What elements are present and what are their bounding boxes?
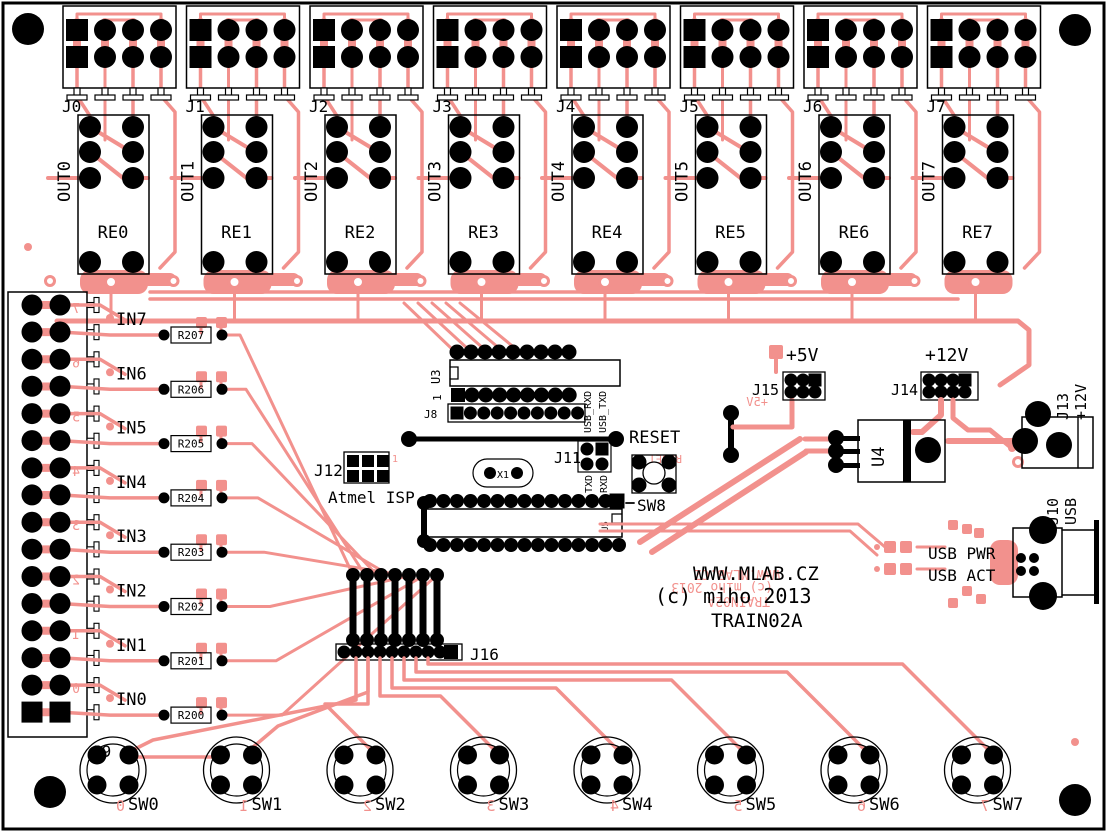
pad-round: [493, 116, 515, 138]
mirror-digit: 5: [72, 411, 80, 426]
usb-act-label: USB ACT: [928, 566, 996, 585]
sw8-ref: SW8: [637, 496, 666, 515]
terminal-mark: [960, 95, 980, 100]
pad-round: [477, 538, 491, 552]
jumper-end: [346, 568, 360, 582]
pad-round: [504, 494, 518, 508]
pad-square: [437, 46, 459, 68]
connector-ref: J0: [62, 97, 81, 116]
pad-round: [518, 494, 532, 508]
pad-round: [335, 746, 354, 765]
j11-signal: USB_RXD: [583, 391, 594, 433]
pad-round: [490, 776, 509, 795]
pad-round: [614, 746, 633, 765]
pad-round: [203, 167, 225, 189]
jumper-end: [346, 633, 360, 647]
pad-round: [891, 46, 913, 68]
mounting-hole: [1059, 784, 1091, 816]
output-signal-label: OUT1: [179, 161, 199, 202]
pad-round: [558, 494, 572, 508]
pad-round: [491, 494, 505, 508]
input-signal-label: IN5: [116, 419, 147, 439]
pad-round: [458, 746, 477, 765]
pad-round: [122, 19, 144, 41]
pad-round: [159, 547, 170, 558]
pad-round: [369, 19, 391, 41]
pad-round: [544, 407, 557, 420]
pad-round: [369, 116, 391, 138]
pad-round: [450, 538, 464, 552]
pad-round: [614, 776, 633, 795]
terminal-mark: [522, 95, 542, 100]
smd-pad: [962, 586, 972, 596]
switch-ref: SW4: [622, 795, 653, 815]
pad-round: [326, 167, 348, 189]
mirror-digit: 1: [72, 628, 80, 643]
pad-round: [616, 46, 638, 68]
pad-round: [737, 746, 756, 765]
terminal-mark: [95, 95, 115, 100]
jumper-end: [374, 568, 388, 582]
pad-round: [159, 330, 170, 341]
pad-round: [50, 349, 71, 370]
pad-round: [159, 438, 170, 449]
pad-square: [444, 645, 458, 659]
pad-round: [785, 386, 798, 399]
output-signal-label: OUT4: [549, 161, 569, 202]
in-via: [106, 477, 114, 485]
pad-round: [987, 116, 1009, 138]
switch-outline: [80, 737, 146, 803]
pad-round: [493, 141, 515, 163]
pad-round: [493, 46, 515, 68]
terminal-mark: [769, 95, 789, 100]
pad-round: [22, 457, 43, 478]
pad-round: [493, 167, 515, 189]
rail-5v-label: +5V: [786, 345, 819, 366]
pad-square: [684, 46, 706, 68]
switch-ref: SW0: [128, 795, 159, 815]
pad-round: [863, 251, 885, 273]
j11-ref: J11: [554, 449, 581, 467]
pad-round: [952, 746, 971, 765]
x1-ref: X1: [497, 470, 509, 481]
pad-round: [705, 776, 724, 795]
pad-round: [952, 776, 971, 795]
pad-round: [987, 46, 1009, 68]
copper-trace: [60, 441, 158, 444]
connector-ref: J6: [803, 97, 822, 116]
terminal-mark: [94, 705, 99, 720]
mirror-digit: 1: [239, 797, 248, 815]
pad-round: [22, 620, 43, 641]
switch-ref: SW7: [993, 795, 1024, 815]
terminal-mark: [219, 95, 239, 100]
pad-round: [79, 167, 101, 189]
via: [476, 277, 487, 288]
jumper-end: [388, 568, 402, 582]
pad-round: [616, 116, 638, 138]
pad-round: [1012, 428, 1038, 454]
pad-round: [246, 46, 268, 68]
pin1-mark: 1: [392, 454, 398, 465]
in-via: [106, 694, 114, 702]
reset-label: RESET: [629, 428, 680, 448]
pad-round: [423, 538, 437, 552]
pad-round: [506, 388, 521, 403]
via: [229, 277, 240, 288]
mirror-digit: 7: [72, 302, 80, 317]
u5-notch: [612, 514, 622, 523]
pad-round: [612, 538, 626, 552]
pad-round: [492, 345, 507, 360]
relay-outline: [202, 115, 273, 274]
pad-round: [50, 322, 71, 343]
jumper-end: [374, 633, 388, 647]
j12-desc: Atmel ISP: [328, 488, 415, 507]
pad-round: [891, 19, 913, 41]
pad-round: [369, 141, 391, 163]
mirror-digit: 0: [116, 797, 125, 815]
pad-round: [450, 494, 464, 508]
pad-round: [493, 251, 515, 273]
copper-dot: [24, 243, 32, 251]
pad-round: [478, 388, 493, 403]
pad-square: [560, 19, 582, 41]
pad-round: [465, 46, 487, 68]
pad-round: [94, 46, 116, 68]
reset-button-cap: [643, 462, 665, 484]
mirror-digit: 7: [980, 797, 989, 815]
terminal-mark: [398, 95, 418, 100]
pad-round: [820, 251, 842, 273]
pad-round: [218, 46, 240, 68]
pad-round: [768, 19, 790, 41]
pad-round: [22, 484, 43, 505]
pad-round: [521, 19, 543, 41]
pad-round: [1025, 401, 1051, 427]
pad-round: [341, 19, 363, 41]
pad-round: [423, 494, 437, 508]
board-name: TRAIN02A: [711, 610, 803, 632]
pad-round: [367, 746, 386, 765]
pad-round: [644, 46, 666, 68]
switch-outline: [574, 737, 640, 803]
pad-round: [632, 478, 647, 493]
pad-round: [50, 647, 71, 668]
connector-ref: J7: [927, 97, 946, 116]
pad-round: [369, 251, 391, 273]
pad-round: [50, 484, 71, 505]
pad-round: [50, 403, 71, 424]
smd-pad: [769, 345, 783, 359]
pad-round: [217, 655, 228, 666]
pad-round: [585, 538, 599, 552]
pad-round: [705, 746, 724, 765]
copper-trace: [695, 14, 779, 30]
terminal-mark: [123, 95, 143, 100]
pad-round: [572, 538, 586, 552]
pad-round: [616, 141, 638, 163]
pad-round: [22, 566, 43, 587]
pad-round: [246, 116, 268, 138]
switch-ref: SW6: [869, 795, 900, 815]
terminal-mark: [94, 325, 99, 340]
smd-pad: [948, 520, 958, 530]
pad-round: [959, 46, 981, 68]
jumper-end: [402, 568, 416, 582]
pad-round: [944, 141, 966, 163]
pad-round: [88, 776, 107, 795]
jumper-end: [401, 431, 417, 447]
relay-ref: RE2: [345, 223, 376, 243]
pad-round: [211, 776, 230, 795]
input-signal-label: IN3: [116, 527, 147, 547]
pad-round: [987, 167, 1009, 189]
pad-round: [947, 386, 960, 399]
input-signal-label: IN4: [116, 473, 147, 493]
relay-outline: [78, 115, 149, 274]
copper-trace: [77, 14, 161, 30]
pad-round: [50, 620, 71, 641]
pad-square: [437, 19, 459, 41]
pad-round: [94, 19, 116, 41]
resistor-ref: R206: [178, 383, 205, 396]
pad-round: [50, 512, 71, 533]
pad-round: [944, 251, 966, 273]
pad-round: [203, 141, 225, 163]
mirror-digit: 3: [486, 797, 495, 815]
copper-trace: [201, 14, 285, 30]
mirror-digit: 2: [72, 574, 80, 589]
pad-round: [506, 345, 521, 360]
pad-round: [828, 443, 844, 459]
terminal-mark: [94, 542, 99, 557]
pad-round: [737, 776, 756, 795]
via: [663, 277, 672, 286]
smd-pad: [976, 594, 986, 604]
pad-square: [807, 46, 829, 68]
copper-trace: [60, 549, 158, 552]
pad-round: [465, 19, 487, 41]
via: [46, 277, 55, 286]
pin1-mark: 1: [431, 394, 444, 401]
pad-round: [863, 141, 885, 163]
pad-square: [313, 19, 335, 41]
pad-round: [437, 538, 451, 552]
pad-round: [504, 407, 517, 420]
j11-signal: TXD: [584, 475, 595, 493]
pad-round: [697, 116, 719, 138]
pad-round: [50, 457, 71, 478]
pad-round: [246, 141, 268, 163]
pad-round: [50, 566, 71, 587]
mirror-digit: 4: [72, 465, 80, 480]
board-copyright: (c) miho 2013: [655, 584, 812, 608]
pad-round: [120, 776, 139, 795]
pad-round: [491, 407, 504, 420]
mirror-digit: 0: [72, 682, 80, 697]
pad-round: [697, 141, 719, 163]
led-pad: [900, 541, 912, 553]
pad-round: [450, 345, 465, 360]
relay-ref: RE3: [468, 223, 499, 243]
pad-round: [1016, 553, 1026, 563]
pad-round: [397, 46, 419, 68]
pad-square: [362, 455, 374, 467]
u3-ref: U3: [429, 370, 443, 384]
resistor-ref: R201: [178, 655, 205, 668]
pad-round: [450, 251, 472, 273]
pad-round: [450, 141, 472, 163]
pad-round: [520, 388, 535, 403]
pad-round: [616, 251, 638, 273]
pad-round: [585, 494, 599, 508]
copper-dot: [1071, 738, 1079, 746]
pad-round: [367, 776, 386, 795]
jumper-end: [388, 633, 402, 647]
resistor-ref: R203: [178, 546, 205, 559]
board-svg: J0RE0OUT0J1RE1OUT1J2RE2OUT2J3RE3OUT3J4RE…: [0, 0, 1107, 832]
pad-round: [122, 116, 144, 138]
relay-outline: [943, 115, 1014, 274]
pad-round: [335, 776, 354, 795]
via: [169, 277, 178, 286]
pad-round: [50, 539, 71, 560]
jumper-end: [402, 633, 416, 647]
pad-round: [740, 19, 762, 41]
usb-pwr-label: USB PWR: [928, 544, 996, 563]
in-via: [106, 314, 114, 322]
copper-dot: [874, 544, 880, 550]
pad-round: [477, 494, 491, 508]
pad-round: [616, 19, 638, 41]
pad-round: [22, 675, 43, 696]
pad-round: [397, 19, 419, 41]
jumper-end: [430, 633, 444, 647]
j13-desc: +12V: [1072, 384, 1090, 420]
pad-round: [959, 386, 972, 399]
relay-ref: RE4: [592, 223, 623, 243]
pad-round: [531, 494, 545, 508]
relay-outline: [325, 115, 396, 274]
pad-round: [944, 116, 966, 138]
pad-round: [562, 345, 577, 360]
mounting-hole: [12, 13, 44, 45]
pad-round: [835, 19, 857, 41]
pad-round: [338, 646, 351, 659]
pad-round: [548, 388, 563, 403]
pad-round: [491, 538, 505, 552]
pad-round: [159, 492, 170, 503]
pad-round: [274, 46, 296, 68]
pad-square: [596, 443, 609, 456]
pad-round: [740, 167, 762, 189]
pad-round: [246, 251, 268, 273]
terminal-mark: [94, 596, 99, 611]
pad-round: [740, 46, 762, 68]
copper-trace: [60, 604, 158, 607]
pad-round: [122, 167, 144, 189]
output-signal-label: OUT0: [55, 161, 75, 202]
pad-round: [616, 167, 638, 189]
pad-round: [326, 116, 348, 138]
pad-round: [150, 46, 172, 68]
pad-round: [159, 710, 170, 721]
pad-round: [531, 407, 544, 420]
j11-signal: USB_TXD: [598, 391, 609, 433]
pad-round: [326, 141, 348, 163]
pad-round: [159, 601, 170, 612]
pad-square: [560, 46, 582, 68]
pad-square: [347, 470, 359, 482]
terminal-mark: [713, 95, 733, 100]
via: [723, 277, 734, 288]
pad-round: [450, 167, 472, 189]
output-signal-label: OUT5: [673, 161, 693, 202]
pad-round: [369, 46, 391, 68]
relay-outline: [819, 115, 890, 274]
pad-round: [768, 46, 790, 68]
pad-round: [1046, 432, 1072, 458]
u3-outline: [450, 360, 620, 386]
pad-round: [548, 345, 563, 360]
copper-trace: [60, 386, 158, 389]
pad-round: [1029, 566, 1039, 576]
copper-trace: [60, 332, 158, 335]
input-signal-label: IN1: [116, 636, 147, 656]
pad-round: [1029, 553, 1039, 563]
terminal-mark: [864, 95, 884, 100]
terminal-mark: [1016, 95, 1036, 100]
bus-fan: [432, 303, 484, 349]
terminal-mark: [275, 95, 295, 100]
pad-round: [534, 345, 549, 360]
pad-round: [521, 46, 543, 68]
in-via: [106, 586, 114, 594]
via: [787, 277, 796, 286]
copper-trace: [818, 14, 902, 30]
pad-round: [79, 251, 101, 273]
u4-tab-hole: [915, 437, 941, 463]
pad-round: [159, 384, 170, 395]
pad-round: [274, 19, 296, 41]
pad-round: [573, 141, 595, 163]
connector-ref: J4: [556, 97, 575, 116]
pad-round: [582, 776, 601, 795]
pad-round: [369, 167, 391, 189]
j8-ref: J8: [424, 408, 437, 421]
pad-round: [863, 46, 885, 68]
pad-round: [573, 167, 595, 189]
pad-round: [582, 746, 601, 765]
pad-round: [1015, 19, 1037, 41]
pad-square: [313, 46, 335, 68]
smd-pad: [948, 598, 958, 608]
pad-round: [326, 251, 348, 273]
pad-round: [22, 430, 43, 451]
output-signal-label: OUT6: [796, 161, 816, 202]
j11-signal: RXD: [599, 475, 610, 493]
pad-round: [50, 295, 71, 316]
mirror-digit: 2: [363, 797, 372, 815]
via: [847, 277, 858, 288]
connector-ref: J3: [433, 97, 452, 116]
pad-round: [863, 116, 885, 138]
pad-round: [712, 19, 734, 41]
via: [293, 277, 302, 286]
pad-round: [159, 655, 170, 666]
